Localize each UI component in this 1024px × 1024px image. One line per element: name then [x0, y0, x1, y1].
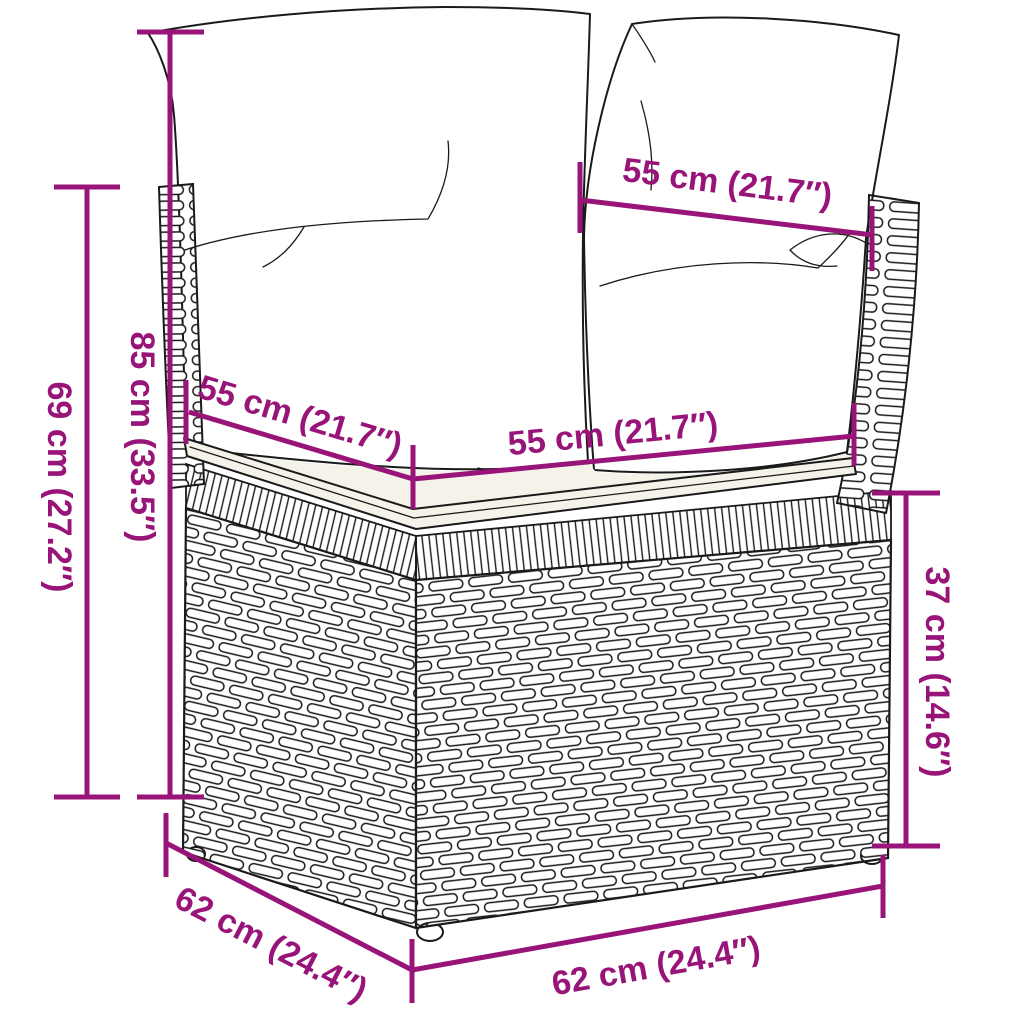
base-face-front	[416, 540, 891, 928]
dim-label-back-total-height: 85 cm (33.5″)	[123, 332, 161, 543]
sofa-sketch	[148, 7, 919, 941]
wicker-base	[183, 464, 891, 941]
dim-label-base-height: 37 cm (14.6″)	[918, 567, 956, 778]
dim-label-arm-frame-height: 69 cm (27.2″)	[40, 382, 78, 593]
product-dimension-diagram: 85 cm (33.5″) 69 cm (27.2″) 55 cm (21.7″…	[0, 0, 1024, 1024]
base-face-left	[183, 508, 416, 928]
sofa-dimension-svg: 85 cm (33.5″) 69 cm (27.2″) 55 cm (21.7″…	[0, 0, 1024, 1024]
